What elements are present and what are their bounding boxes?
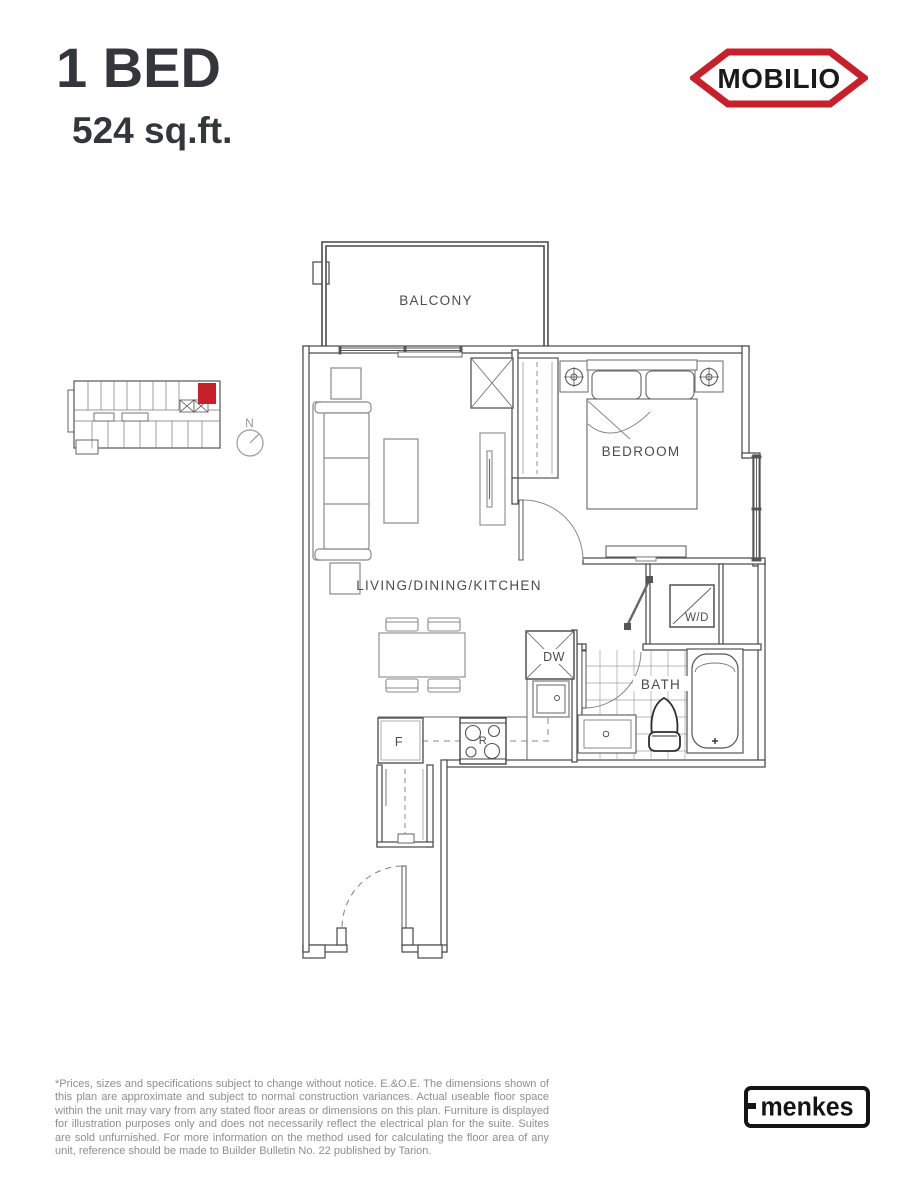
sofa <box>313 402 371 560</box>
dishwasher: DW <box>526 631 574 679</box>
bath-door <box>582 651 641 708</box>
room-label-balcony: BALCONY <box>399 293 473 308</box>
dining-table <box>379 633 465 677</box>
dining-chair <box>386 679 418 692</box>
balcony-door <box>398 352 462 357</box>
bathroom: BATH <box>578 649 743 760</box>
balcony: BALCONY <box>313 244 546 349</box>
label-washer-dryer: W/D <box>685 612 709 624</box>
keyplan-highlighted-unit <box>198 383 216 404</box>
room-label-living: LIVING/DINING/KITCHEN <box>356 578 542 593</box>
label-range: R <box>479 735 487 747</box>
fridge: F <box>378 718 423 763</box>
bath-vanity <box>578 715 636 753</box>
coffee-table <box>384 439 418 523</box>
menkes-logo: menkes <box>744 1086 870 1128</box>
bedroom-closet <box>518 358 558 478</box>
toilet <box>649 698 680 751</box>
kitchen-sink <box>533 681 569 717</box>
bathtub <box>687 649 743 753</box>
compass-icon: N <box>237 416 263 456</box>
keyplan <box>68 381 220 454</box>
dining-chair <box>428 618 460 631</box>
room-label-bedroom: BEDROOM <box>602 444 681 459</box>
room-label-bath: BATH <box>641 677 681 692</box>
label-dishwasher: DW <box>543 650 565 664</box>
floorplan-page: { "header": { "title": "1 BED", "area": … <box>0 0 918 1188</box>
floorplan-drawing: N BALCONY <box>0 0 918 1188</box>
label-fridge: F <box>395 735 403 749</box>
menkes-logo-text: menkes <box>760 1094 853 1120</box>
bedroom-door <box>519 500 583 560</box>
dining-chair <box>428 679 460 692</box>
tv-console <box>480 433 505 525</box>
nightstand-right <box>695 361 723 392</box>
bedroom: BEDROOM <box>560 360 723 561</box>
laundry-closet: W/D <box>624 576 714 630</box>
dining-set <box>379 618 465 692</box>
compass-north-label: N <box>245 416 255 430</box>
range: R <box>460 718 506 764</box>
disclaimer-text: *Prices, sizes and specifications subjec… <box>55 1078 549 1158</box>
bed <box>587 360 697 509</box>
dining-chair <box>386 618 418 631</box>
shaft-box <box>471 358 513 408</box>
entry-door <box>337 866 413 945</box>
entry-closet <box>386 769 423 843</box>
nightstand-left <box>560 361 588 392</box>
side-table-top <box>331 368 361 399</box>
